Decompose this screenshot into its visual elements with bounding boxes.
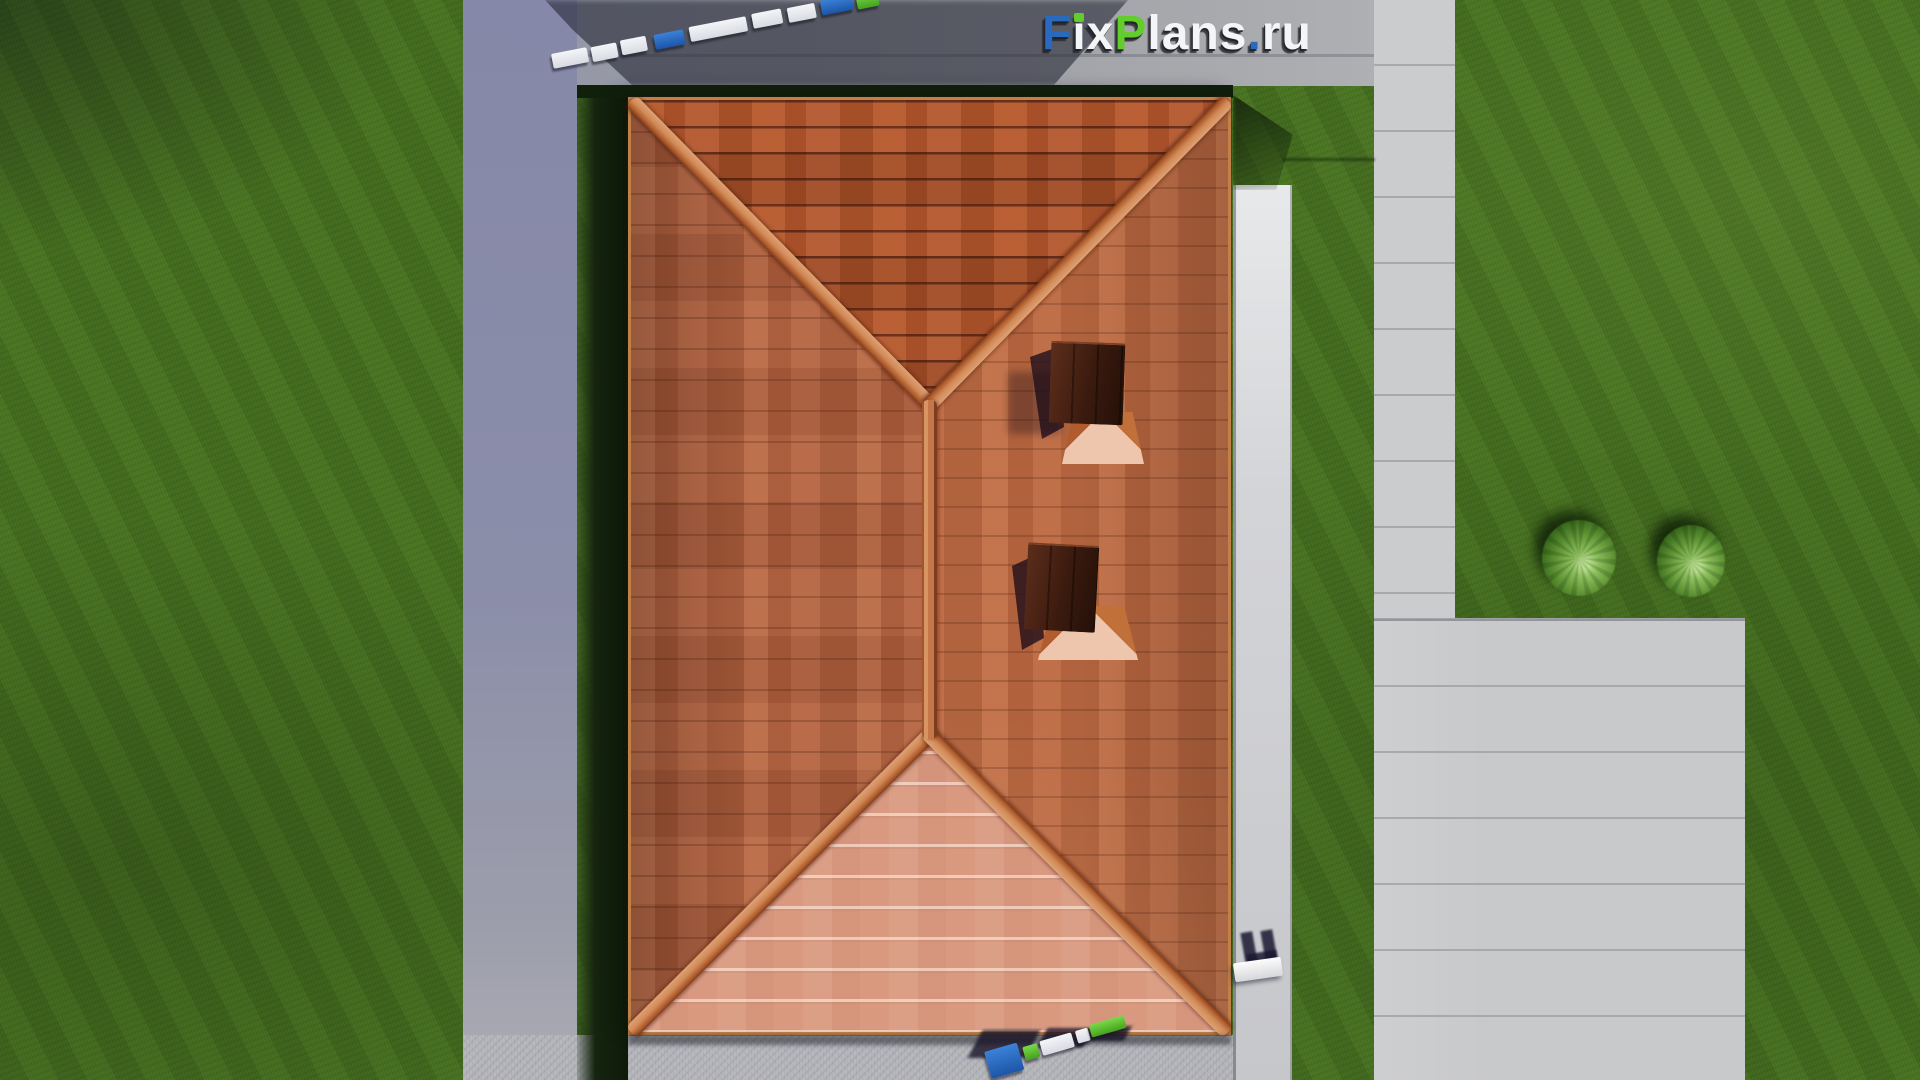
logo-letter: u [1282, 6, 1312, 61]
logo-letter: n [1189, 6, 1219, 61]
logo-letter: i [1072, 6, 1086, 61]
fixplans-watermark-logo[interactable]: FixPlans.ru [1042, 6, 1312, 61]
roof-faces [631, 100, 1228, 1032]
logo-letter: s [1220, 6, 1248, 61]
eave-shadow [628, 1035, 1231, 1045]
ruler-segment [590, 42, 618, 62]
logo-letter: . [1247, 6, 1261, 61]
logo-letter: P [1114, 6, 1147, 61]
ruler-segment-blue [653, 29, 685, 49]
ruler-segment-green [855, 0, 879, 10]
shaded-strip-left [577, 85, 628, 1080]
hip-roof [628, 97, 1231, 1035]
ruler-segment [620, 36, 648, 56]
ruler-segment [1039, 1032, 1075, 1056]
chimney-2 [1024, 542, 1099, 633]
ruler-segment-blue [820, 0, 854, 15]
bush-2 [1657, 525, 1725, 597]
logo-letter: F [1042, 6, 1072, 61]
bush-1 [1542, 520, 1616, 596]
garden-edge-line [1283, 158, 1375, 161]
chimney-1 [1049, 341, 1126, 426]
logo-letter: r [1262, 6, 1282, 61]
logo-letter: l [1147, 6, 1161, 61]
courtyard-pavement-left [463, 0, 577, 1080]
driveway-slab-area [1374, 618, 1745, 1080]
logo-letter: a [1162, 6, 1190, 61]
ridge-cap [922, 400, 937, 739]
ruler-segment [1075, 1028, 1091, 1044]
render-stage: FixPlans.ru [0, 0, 1920, 1080]
logo-letter: x [1087, 6, 1115, 61]
ruler-segment-green [1022, 1043, 1040, 1061]
